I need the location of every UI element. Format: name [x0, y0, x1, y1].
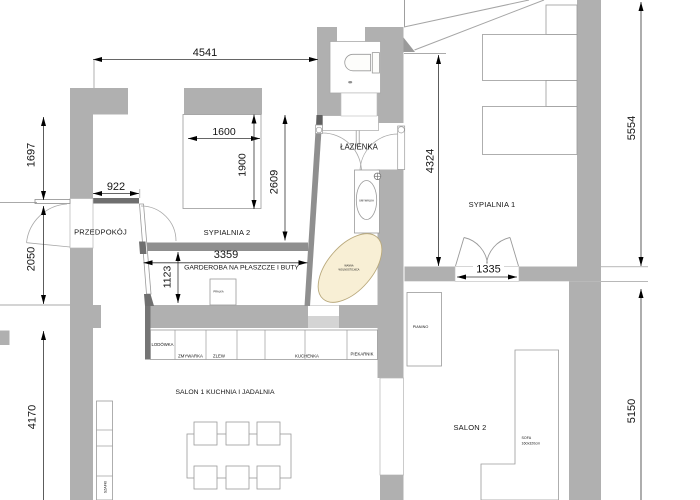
- svg-text:ZLEW: ZLEW: [213, 354, 226, 359]
- svg-text:UMYWALKA: UMYWALKA: [359, 198, 374, 202]
- svg-text:922: 922: [107, 181, 125, 193]
- svg-text:1900: 1900: [237, 153, 249, 177]
- svg-text:160x320cm: 160x320cm: [522, 442, 541, 446]
- svg-text:PIEKARNIK: PIEKARNIK: [351, 352, 374, 357]
- svg-text:4170: 4170: [27, 405, 39, 429]
- svg-text:SALON 1 KUCHNIA I JADALNIA: SALON 1 KUCHNIA I JADALNIA: [176, 389, 275, 396]
- svg-text:4324: 4324: [425, 149, 437, 173]
- svg-text:LODÓWKA: LODÓWKA: [152, 342, 174, 347]
- svg-text:SYPIALNIA 2: SYPIALNIA 2: [204, 228, 251, 237]
- svg-text:GARDEROBA NA PŁASZCZE I BUTY: GARDEROBA NA PŁASZCZE I BUTY: [184, 265, 299, 272]
- svg-text:ZMYWARKA: ZMYWARKA: [178, 354, 203, 359]
- svg-text:SYPIALNIA 1: SYPIALNIA 1: [469, 200, 516, 209]
- svg-text:1123: 1123: [162, 266, 174, 289]
- svg-text:WOLNOSTOJĄCA: WOLNOSTOJĄCA: [339, 269, 360, 272]
- svg-text:5554: 5554: [626, 116, 638, 140]
- svg-text:KUCHENKA: KUCHENKA: [295, 354, 319, 359]
- svg-text:SALON 2: SALON 2: [453, 423, 486, 432]
- svg-text:PRZEDPOKÓJ: PRZEDPOKÓJ: [74, 228, 127, 237]
- svg-text:SZAFKI: SZAFKI: [104, 481, 108, 494]
- svg-text:2609: 2609: [269, 170, 281, 194]
- svg-text:WANNA: WANNA: [344, 265, 354, 268]
- svg-text:2050: 2050: [26, 247, 38, 271]
- svg-text:5150: 5150: [626, 399, 638, 423]
- svg-text:PRALKA: PRALKA: [213, 290, 224, 294]
- svg-text:1600: 1600: [212, 126, 236, 138]
- svg-text:1335: 1335: [476, 264, 500, 276]
- svg-text:SOFA: SOFA: [522, 436, 532, 440]
- svg-text:3359: 3359: [214, 249, 238, 261]
- svg-text:PIANINO: PIANINO: [413, 325, 429, 329]
- svg-text:1697: 1697: [26, 143, 38, 167]
- svg-text:4541: 4541: [193, 47, 217, 59]
- svg-text:ŁAZIENKA: ŁAZIENKA: [340, 143, 378, 152]
